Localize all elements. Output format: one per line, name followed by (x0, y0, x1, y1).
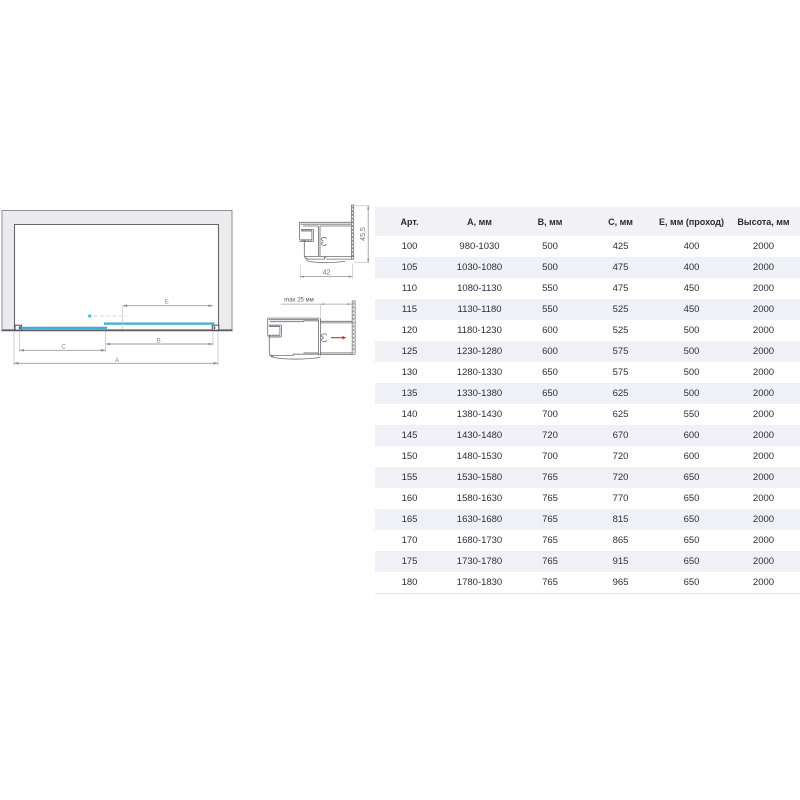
svg-text:A: A (115, 358, 119, 364)
svg-text:45,5: 45,5 (360, 227, 367, 241)
svg-text:max 25 мм: max 25 мм (284, 298, 314, 304)
svg-text:C: C (61, 344, 66, 350)
svg-text:E: E (165, 299, 169, 305)
svg-text:B: B (157, 338, 161, 344)
svg-text:42: 42 (323, 270, 331, 277)
